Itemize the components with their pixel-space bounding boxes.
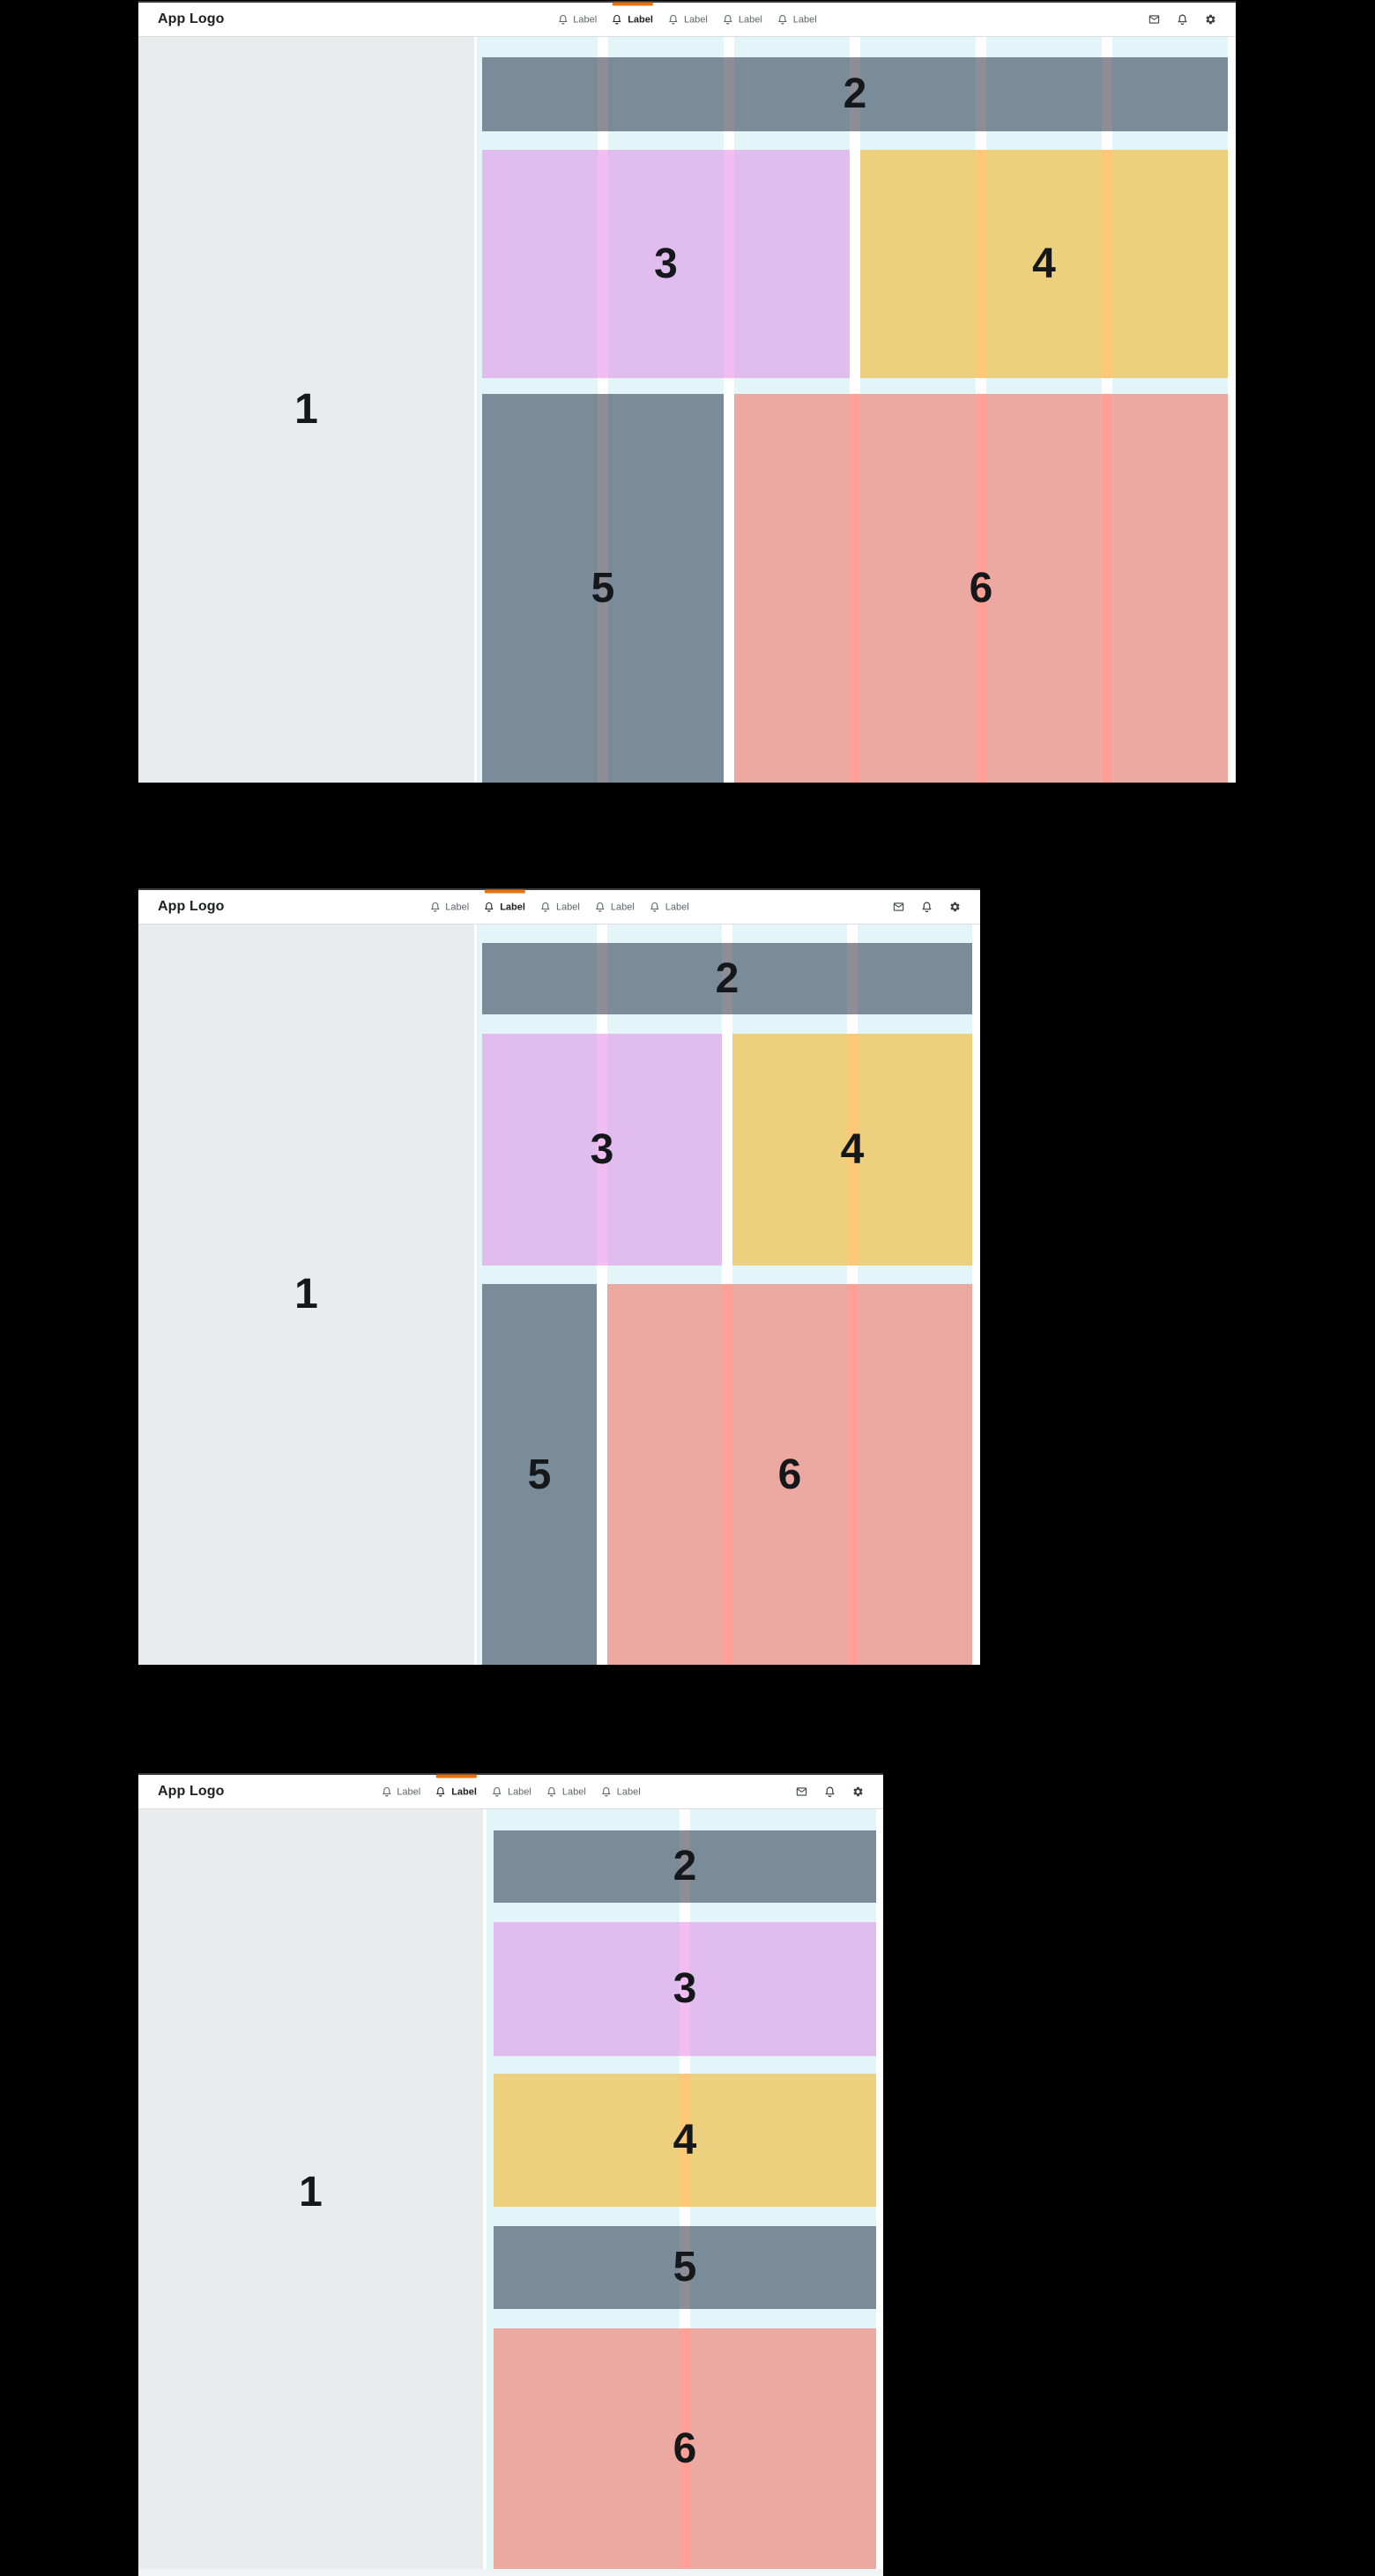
region-block-6: 6 [607,1284,972,1665]
nav-item-5[interactable]: Label [601,1786,641,1798]
bell-icon [668,14,679,26]
nav-item-label: Label [611,902,635,912]
region-number: 3 [673,1968,697,2010]
mail-icon[interactable] [893,902,904,913]
bell-icon [723,14,733,26]
settings-icon[interactable] [852,1786,864,1798]
region-block-2: 2 [482,943,972,1014]
nav-item-4[interactable]: Label [723,14,762,26]
region-block-3: 3 [494,1922,876,2056]
nav-item-4[interactable]: Label [546,1786,586,1798]
region-number: 2 [716,958,740,1000]
nav-item-5[interactable]: Label [650,902,689,913]
bell-icon [484,902,494,913]
region-number: 3 [591,1129,614,1171]
nav-item-label: Label [793,14,817,25]
region-number: 5 [673,2246,697,2289]
app-logo: App Logo [158,11,224,27]
grid-main-area: 23456 [474,37,1236,783]
top-nav: LabelLabelLabelLabelLabel [557,14,816,26]
active-tab-indicator [613,3,653,6]
nav-item-2-active[interactable]: Label [435,1786,477,1798]
nav-item-label: Label [562,1786,586,1797]
region-block-2: 2 [482,57,1228,131]
region-number: 4 [1032,243,1056,286]
region-block-6: 6 [734,394,1228,783]
mail-icon[interactable] [1148,14,1160,26]
bell-icon [381,1786,391,1798]
region-block-3: 3 [482,150,850,378]
nav-item-5[interactable]: Label [777,14,817,26]
region-block-4: 4 [732,1034,972,1266]
notifications-icon[interactable] [921,902,933,913]
viewport-frame-2col: App LogoLabelLabelLabelLabelLabel123456 [138,1773,883,2576]
region-number: 4 [841,1129,865,1171]
region-number: 2 [844,73,867,115]
bell-icon [429,902,440,913]
nav-item-2-active[interactable]: Label [612,14,653,26]
region-number: 1 [299,2171,323,2214]
viewport-frame-4col: App LogoLabelLabelLabelLabelLabel123456 [138,888,980,1665]
region-number: 6 [778,1454,802,1496]
bell-icon [492,1786,502,1798]
page-canvas: App LogoLabelLabelLabelLabelLabel123456A… [0,0,1375,2576]
bell-icon [777,14,788,26]
bell-icon [435,1786,446,1798]
nav-item-label: Label [617,1786,641,1797]
header-action-icons [796,1786,864,1798]
region-number: 1 [294,1273,318,1316]
nav-item-label: Label [739,14,762,25]
app-logo: App Logo [158,1784,224,1800]
active-tab-indicator [436,1775,477,1778]
grid-main-area: 23456 [474,924,980,1665]
region-number: 6 [673,2428,697,2470]
nav-item-3[interactable]: Label [492,1786,531,1798]
bell-icon [540,902,551,913]
region-number: 5 [528,1454,552,1496]
region-number: 2 [673,1845,697,1888]
nav-item-label: Label [445,902,469,912]
content-area: 123456 [138,924,980,1665]
notifications-icon[interactable] [1177,14,1188,26]
content-area: 123456 [138,37,1236,783]
nav-item-4[interactable]: Label [595,902,635,913]
bell-icon [650,902,660,913]
nav-item-label: Label [684,14,708,25]
nav-item-label: Label [556,902,580,912]
bell-icon [557,14,568,26]
frame-bottom-strip [138,2569,883,2576]
content-area: 123456 [138,1809,883,2576]
viewport-frame-6col: App LogoLabelLabelLabelLabelLabel123456 [138,1,1236,783]
nav-item-label: Label [508,1786,531,1797]
region-block-6: 6 [494,2328,876,2570]
app-bar: App LogoLabelLabelLabelLabelLabel [138,1773,883,1809]
nav-item-label: Label [500,902,525,912]
nav-item-1[interactable]: Label [381,1786,420,1798]
nav-item-label: Label [451,1786,477,1797]
nav-item-1[interactable]: Label [557,14,597,26]
bell-icon [595,902,606,913]
bell-icon [601,1786,612,1798]
notifications-icon[interactable] [824,1786,836,1798]
app-logo: App Logo [158,899,224,915]
header-action-icons [893,902,961,913]
region-number: 6 [970,568,993,610]
app-bar: App LogoLabelLabelLabelLabelLabel [138,888,980,924]
region-sidebar: 1 [138,1809,483,2576]
region-block-5: 5 [494,2226,876,2309]
region-block-2: 2 [494,1830,876,1903]
top-nav: LabelLabelLabelLabelLabel [381,1786,640,1798]
region-sidebar: 1 [138,924,474,1665]
nav-item-1[interactable]: Label [429,902,469,913]
app-bar: App LogoLabelLabelLabelLabelLabel [138,1,1236,37]
header-action-icons [1148,14,1216,26]
settings-icon[interactable] [949,902,961,913]
nav-item-3[interactable]: Label [668,14,708,26]
region-block-3: 3 [482,1034,722,1266]
top-nav: LabelLabelLabelLabelLabel [429,902,688,913]
region-number: 4 [673,2119,697,2162]
region-sidebar: 1 [138,37,474,783]
bell-icon [612,14,622,26]
nav-item-label: Label [397,1786,420,1797]
nav-item-2-active[interactable]: Label [484,902,525,913]
grid-main-area: 23456 [483,1809,883,2576]
mail-icon[interactable] [796,1786,807,1798]
active-tab-indicator [485,890,525,894]
nav-item-label: Label [573,14,597,25]
region-block-5: 5 [482,394,724,783]
region-number: 3 [654,243,678,286]
region-block-5: 5 [482,1284,597,1665]
region-number: 5 [591,568,615,610]
nav-item-3[interactable]: Label [540,902,580,913]
settings-icon[interactable] [1205,14,1216,26]
region-number: 1 [294,389,318,431]
bell-icon [546,1786,557,1798]
nav-item-label: Label [665,902,689,912]
nav-item-label: Label [628,14,653,25]
region-block-4: 4 [494,2074,876,2207]
region-block-4: 4 [860,150,1228,378]
